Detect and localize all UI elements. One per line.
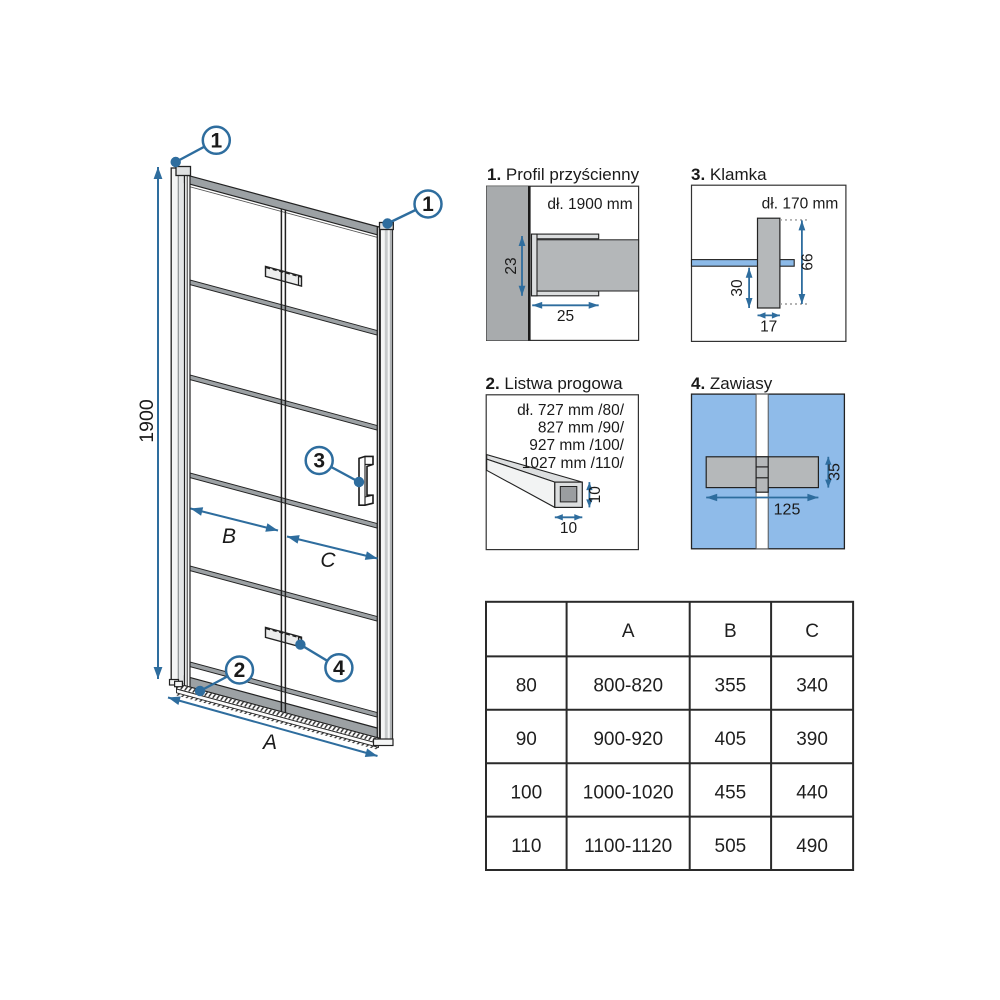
- svg-text:25: 25: [557, 308, 574, 325]
- svg-text:3. Klamka: 3. Klamka: [691, 165, 767, 184]
- svg-text:340: 340: [796, 676, 828, 697]
- svg-text:dł. 170 mm: dł. 170 mm: [762, 196, 839, 213]
- svg-text:355: 355: [715, 676, 747, 697]
- svg-text:10: 10: [560, 520, 578, 537]
- svg-text:23: 23: [503, 257, 520, 274]
- svg-text:505: 505: [715, 836, 747, 857]
- svg-text:1: 1: [210, 129, 222, 152]
- svg-text:C: C: [320, 549, 336, 572]
- svg-text:3: 3: [313, 450, 325, 473]
- svg-text:405: 405: [715, 729, 747, 750]
- svg-text:4: 4: [333, 657, 345, 680]
- svg-text:B: B: [222, 525, 236, 548]
- svg-text:800-820: 800-820: [593, 676, 663, 697]
- svg-text:A: A: [622, 621, 635, 642]
- svg-text:125: 125: [774, 502, 801, 519]
- svg-text:30: 30: [729, 279, 746, 297]
- svg-text:2. Listwa progowa: 2. Listwa progowa: [486, 374, 624, 393]
- svg-text:1: 1: [422, 193, 434, 216]
- svg-text:35: 35: [827, 463, 844, 481]
- svg-text:1. Profil przyścienny: 1. Profil przyścienny: [487, 165, 640, 184]
- svg-text:80: 80: [516, 676, 537, 697]
- svg-text:2: 2: [234, 659, 246, 682]
- svg-text:455: 455: [715, 783, 747, 804]
- svg-text:900-920: 900-920: [593, 729, 663, 750]
- svg-text:10: 10: [587, 486, 604, 504]
- svg-text:827 mm /90/: 827 mm /90/: [538, 420, 625, 437]
- svg-text:390: 390: [796, 729, 828, 750]
- svg-text:1100-1120: 1100-1120: [584, 836, 672, 857]
- svg-text:1900: 1900: [136, 399, 158, 443]
- svg-text:dł. 727 mm /80/: dł. 727 mm /80/: [517, 402, 625, 419]
- svg-text:C: C: [805, 621, 819, 642]
- svg-text:17: 17: [760, 319, 777, 336]
- svg-text:100: 100: [510, 783, 542, 804]
- svg-text:927 mm /100/: 927 mm /100/: [529, 437, 624, 454]
- svg-text:B: B: [724, 621, 737, 642]
- svg-text:1027 mm /110/: 1027 mm /110/: [522, 455, 625, 472]
- svg-text:90: 90: [516, 729, 537, 750]
- svg-text:110: 110: [511, 836, 541, 857]
- svg-text:A: A: [261, 731, 277, 754]
- svg-text:66: 66: [800, 253, 817, 270]
- svg-text:dł. 1900 mm: dł. 1900 mm: [547, 196, 632, 213]
- svg-text:4. Zawiasy: 4. Zawiasy: [691, 374, 773, 393]
- svg-text:440: 440: [796, 783, 828, 804]
- svg-text:1000-1020: 1000-1020: [583, 783, 674, 804]
- svg-text:490: 490: [796, 836, 828, 857]
